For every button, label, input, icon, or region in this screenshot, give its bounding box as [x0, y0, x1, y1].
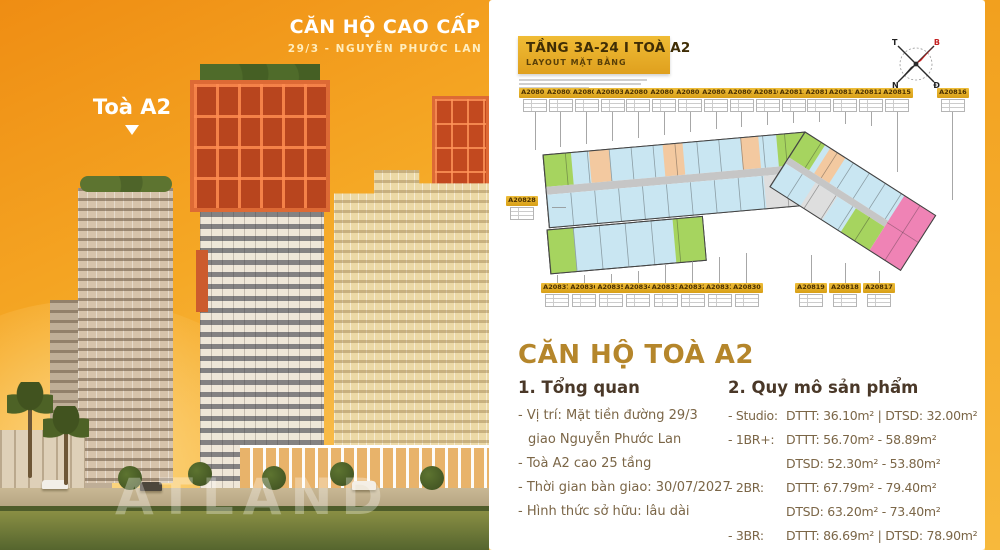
unit-code: A20818	[829, 283, 861, 293]
unit-label: A20818	[834, 263, 856, 307]
leader-line	[638, 112, 639, 138]
leader-line	[719, 257, 720, 283]
unit-mini-table	[730, 99, 754, 112]
product-row: - Studio:DTTT: 36.10m² | DTSD: 32.00m²	[728, 404, 978, 428]
unit-code: A20828	[506, 196, 538, 206]
tree	[188, 462, 212, 486]
leader-line	[664, 112, 665, 135]
headline: CĂN HỘ CAO CẤP	[285, 16, 485, 38]
overview-list: - Vị trí: Mặt tiền đường 29/3giao Nguyễn…	[518, 404, 740, 524]
products-list: - Studio:DTTT: 36.10m² | DTSD: 32.00m²- …	[728, 404, 978, 548]
car	[352, 481, 376, 490]
unit-mini-table	[833, 99, 857, 112]
leader-line	[535, 112, 536, 150]
unit-label: A20833	[655, 265, 677, 307]
leader-line	[557, 275, 558, 283]
unit-label: A20802	[550, 88, 572, 147]
facade-orange-accent	[196, 250, 208, 312]
down-arrow-icon	[125, 125, 139, 135]
product-type-label: - Studio:	[728, 404, 786, 428]
products-heading: 2. Quy mô sản phẩm	[728, 378, 978, 397]
unit-mini-table	[782, 99, 806, 112]
unit-mini-table	[681, 294, 705, 307]
left-tower	[78, 188, 173, 483]
unit-label: A20807	[679, 88, 701, 132]
unit-label: A20811	[783, 88, 805, 123]
headline-block: CĂN HỘ CAO CẤP 29/3 - NGUYỄN PHƯỚC LAN	[285, 16, 485, 55]
bottom-left-unit-labels: A20837A20836A20835A20834A20833A20832A208…	[546, 247, 758, 307]
unit-code: A20815	[881, 88, 913, 98]
unit-label: A20816	[942, 88, 964, 200]
unit-label: A20836	[573, 275, 595, 307]
leader-line	[879, 271, 880, 283]
unit-mini-table	[545, 294, 569, 307]
unit-code: A20830	[731, 283, 763, 293]
unit-mini-table	[599, 294, 623, 307]
leader-line	[811, 255, 812, 283]
leader-line	[845, 263, 846, 283]
unit-mini-table	[799, 294, 823, 307]
unit-mini-table	[735, 294, 759, 307]
tree	[118, 466, 142, 490]
leader-line	[611, 274, 612, 283]
leader-line	[952, 112, 953, 200]
unit-label: A20801	[524, 88, 546, 150]
unit-mini-table	[626, 99, 650, 112]
leader-line	[897, 112, 898, 172]
top-unit-labels: A20801A20802A20803A20803AA20805A20806A20…	[524, 88, 964, 200]
leader-line	[665, 265, 666, 283]
unit-mini-table	[859, 99, 883, 112]
poster: CĂN HỘ CAO CẤP 29/3 - NGUYỄN PHƯỚC LAN T…	[0, 0, 1000, 550]
product-areas: DTTT: 36.10m² | DTSD: 32.00m²	[786, 404, 977, 428]
unit-mini-table	[678, 99, 702, 112]
leader-line	[793, 112, 794, 123]
product-areas: DTTT: 67.79m² - 79.40m²DTSD: 63.20m² - 7…	[786, 476, 941, 524]
leader-line	[746, 253, 747, 283]
product-type-label: - 2BR:	[728, 476, 786, 524]
overview-heading: 1. Tổng quan	[518, 378, 740, 397]
building-render: CĂN HỘ CAO CẤP 29/3 - NGUYỄN PHƯỚC LAN T…	[0, 0, 489, 550]
product-row: - 1BR+:DTTT: 56.70m² - 58.89m²DTSD: 52.3…	[728, 428, 978, 476]
unit-code: A20819	[795, 283, 827, 293]
tree	[330, 462, 354, 486]
leader-line	[552, 207, 566, 208]
floor-badge: TẦNG 3A-24 I TOÀ A2 LAYOUT MẶT BẰNG	[518, 36, 670, 74]
unit-mini-table	[572, 294, 596, 307]
bottom-right-unit-labels: A20819A20818A20817	[800, 247, 890, 307]
overview-item: giao Nguyễn Phước Lan	[518, 428, 740, 452]
unit-label: A20812B	[860, 88, 882, 126]
unit-label: A20835	[600, 274, 622, 307]
car	[140, 482, 162, 491]
unit-label: A20808	[705, 88, 727, 129]
leader-line	[819, 112, 820, 122]
compass-north: B	[934, 38, 940, 47]
leader-line	[560, 112, 561, 147]
unit-label: A20837	[546, 275, 568, 307]
leader-line	[690, 112, 691, 132]
leader-line	[741, 112, 742, 127]
lawn	[0, 506, 489, 550]
leader-line	[586, 112, 587, 144]
overview-item: - Thời gian bàn giao: 30/07/2027	[518, 476, 740, 500]
tower-a2-label: Toà A2	[92, 95, 172, 135]
product-type-label: - 3BR:	[728, 524, 786, 548]
tower-a2-orange-crown	[190, 80, 330, 212]
unit-code: A20817	[863, 283, 895, 293]
product-areas: DTTT: 86.69m² | DTSD: 78.90m²	[786, 524, 977, 548]
unit-mini-table	[704, 99, 728, 112]
unit-mini-table	[833, 294, 857, 307]
leader-line	[612, 112, 613, 141]
unit-label: A20834	[627, 271, 649, 307]
unit-label: A20806	[653, 88, 675, 135]
leader-line	[692, 261, 693, 283]
compass-icon: T B N Đ	[888, 36, 944, 92]
unit-label: A20828	[507, 196, 537, 220]
leader-line	[584, 275, 585, 283]
unit-label: A20809	[731, 88, 753, 127]
tower-a2-label-text: Toà A2	[93, 95, 171, 119]
tree	[420, 466, 444, 490]
unit-label: A20819	[800, 255, 822, 307]
tree	[262, 466, 286, 490]
unit-label: A20805	[627, 88, 649, 138]
leader-line	[845, 112, 846, 124]
unit-mini-table	[652, 99, 676, 112]
unit-mini-table	[654, 294, 678, 307]
info-card: TẦNG 3A-24 I TOÀ A2 LAYOUT MẶT BẰNG T B …	[489, 0, 985, 550]
leader-line	[871, 112, 872, 126]
rooftop-garden	[80, 176, 172, 192]
section-title: CĂN HỘ TOÀ A2	[518, 340, 754, 370]
right-orange-strip	[985, 0, 1000, 550]
product-row: - 3BR:DTTT: 86.69m² | DTSD: 78.90m²	[728, 524, 978, 548]
unit-code: A20816	[937, 88, 969, 98]
product-type-label: - 1BR+:	[728, 428, 786, 476]
leader-line	[767, 112, 768, 125]
unit-mini-table	[575, 99, 599, 112]
unit-mini-table	[867, 294, 891, 307]
overview-item: - Hình thức sở hữu: lâu dài	[518, 500, 740, 524]
unit-label: A20815	[886, 88, 908, 172]
floor-badge-subtitle: LAYOUT MẶT BẰNG	[526, 58, 662, 67]
unit-mini-table	[807, 99, 831, 112]
leader-line	[716, 112, 717, 129]
unit-mini-table	[510, 207, 534, 220]
overview-column: 1. Tổng quan - Vị trí: Mặt tiền đường 29…	[518, 378, 740, 524]
overview-item: - Vị trí: Mặt tiền đường 29/3	[518, 404, 740, 428]
unit-label: A20832	[682, 261, 704, 307]
compass-west: T	[892, 38, 897, 47]
products-column: 2. Quy mô sản phẩm - Studio:DTTT: 36.10m…	[728, 378, 978, 548]
leader-line	[638, 271, 639, 283]
unit-label: A20810	[757, 88, 779, 125]
unit-mini-table	[941, 99, 965, 112]
unit-label: A20803A	[602, 88, 624, 141]
floor-badge-title: TẦNG 3A-24 I TOÀ A2	[526, 40, 662, 56]
unit-mini-table	[885, 99, 909, 112]
unit-mini-table	[756, 99, 780, 112]
unit-label: A20817	[868, 271, 890, 307]
product-areas: DTTT: 56.70m² - 58.89m²DTSD: 52.30m² - 5…	[786, 428, 941, 476]
unit-label: A20830	[736, 253, 758, 307]
unit-mini-table	[523, 99, 547, 112]
product-row: - 2BR:DTTT: 67.79m² - 79.40m²DTSD: 63.20…	[728, 476, 978, 524]
palm-tree	[43, 406, 89, 446]
unit-mini-table	[626, 294, 650, 307]
unit-mini-table	[708, 294, 732, 307]
overview-item: - Toà A2 cao 25 tầng	[518, 452, 740, 476]
unit-mini-table	[549, 99, 573, 112]
unit-label: A20831	[709, 257, 731, 307]
unit-mini-table	[601, 99, 625, 112]
subheadline: 29/3 - NGUYỄN PHƯỚC LAN	[285, 43, 485, 55]
